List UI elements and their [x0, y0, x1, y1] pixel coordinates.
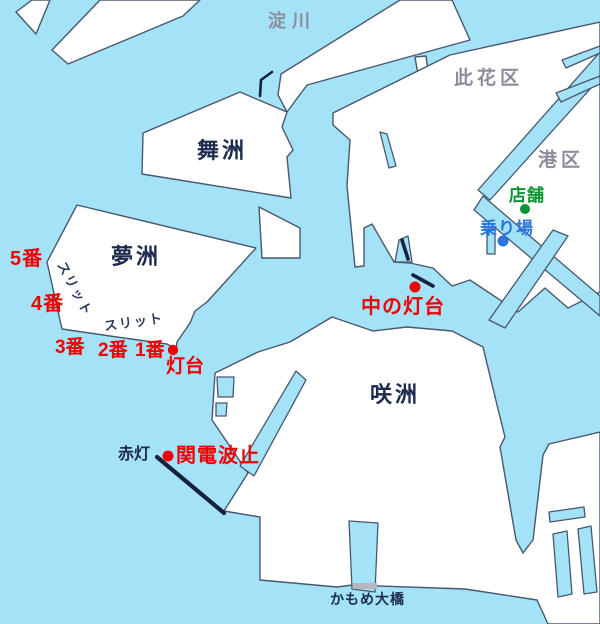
west-basin-1 [217, 377, 234, 397]
west-basin-2 [216, 403, 227, 416]
boarding-point-label: 乗り場 [480, 220, 534, 237]
shop-marker-dot [520, 204, 530, 214]
naka-lighthouse-marker-dot [410, 282, 421, 293]
shop-label: 店舗 [509, 187, 545, 204]
yodogawa-label: 淀川 [268, 12, 316, 30]
yumeshima-label: 夢洲 [111, 246, 161, 268]
konohana-ward-label: 此花区 [454, 69, 523, 88]
kanden-breakwater-label: 関電波止 [176, 446, 260, 466]
spot-3-label: 3番 [55, 338, 85, 357]
kamome-channel [349, 521, 378, 592]
lighthouse-label: 灯台 [166, 357, 204, 376]
minato-ward-label: 港区 [538, 151, 584, 170]
kanden-marker-dot [163, 451, 174, 462]
spot-1-label: 1番 [135, 341, 165, 360]
kamome-bridge-deck [353, 583, 377, 589]
kamome-bridge-label: かもめ大橋 [330, 592, 405, 606]
spot-5-label: 5番 [10, 249, 43, 269]
sakishima-label: 咲洲 [370, 384, 420, 406]
naka-lighthouse-label: 中の灯台 [361, 297, 445, 317]
lighthouse-marker-dot [168, 345, 178, 355]
spot-2-label: 2番 [98, 341, 128, 360]
spot-4-label: 4番 [31, 294, 64, 314]
maishima-label: 舞洲 [197, 140, 247, 162]
osaka-bay-fishing-map: 淀川 此花区 港区 舞洲 夢洲 咲洲 スリット スリット 5番 4番 3番 2番… [0, 0, 600, 624]
red-light-label: 赤灯 [118, 447, 150, 463]
